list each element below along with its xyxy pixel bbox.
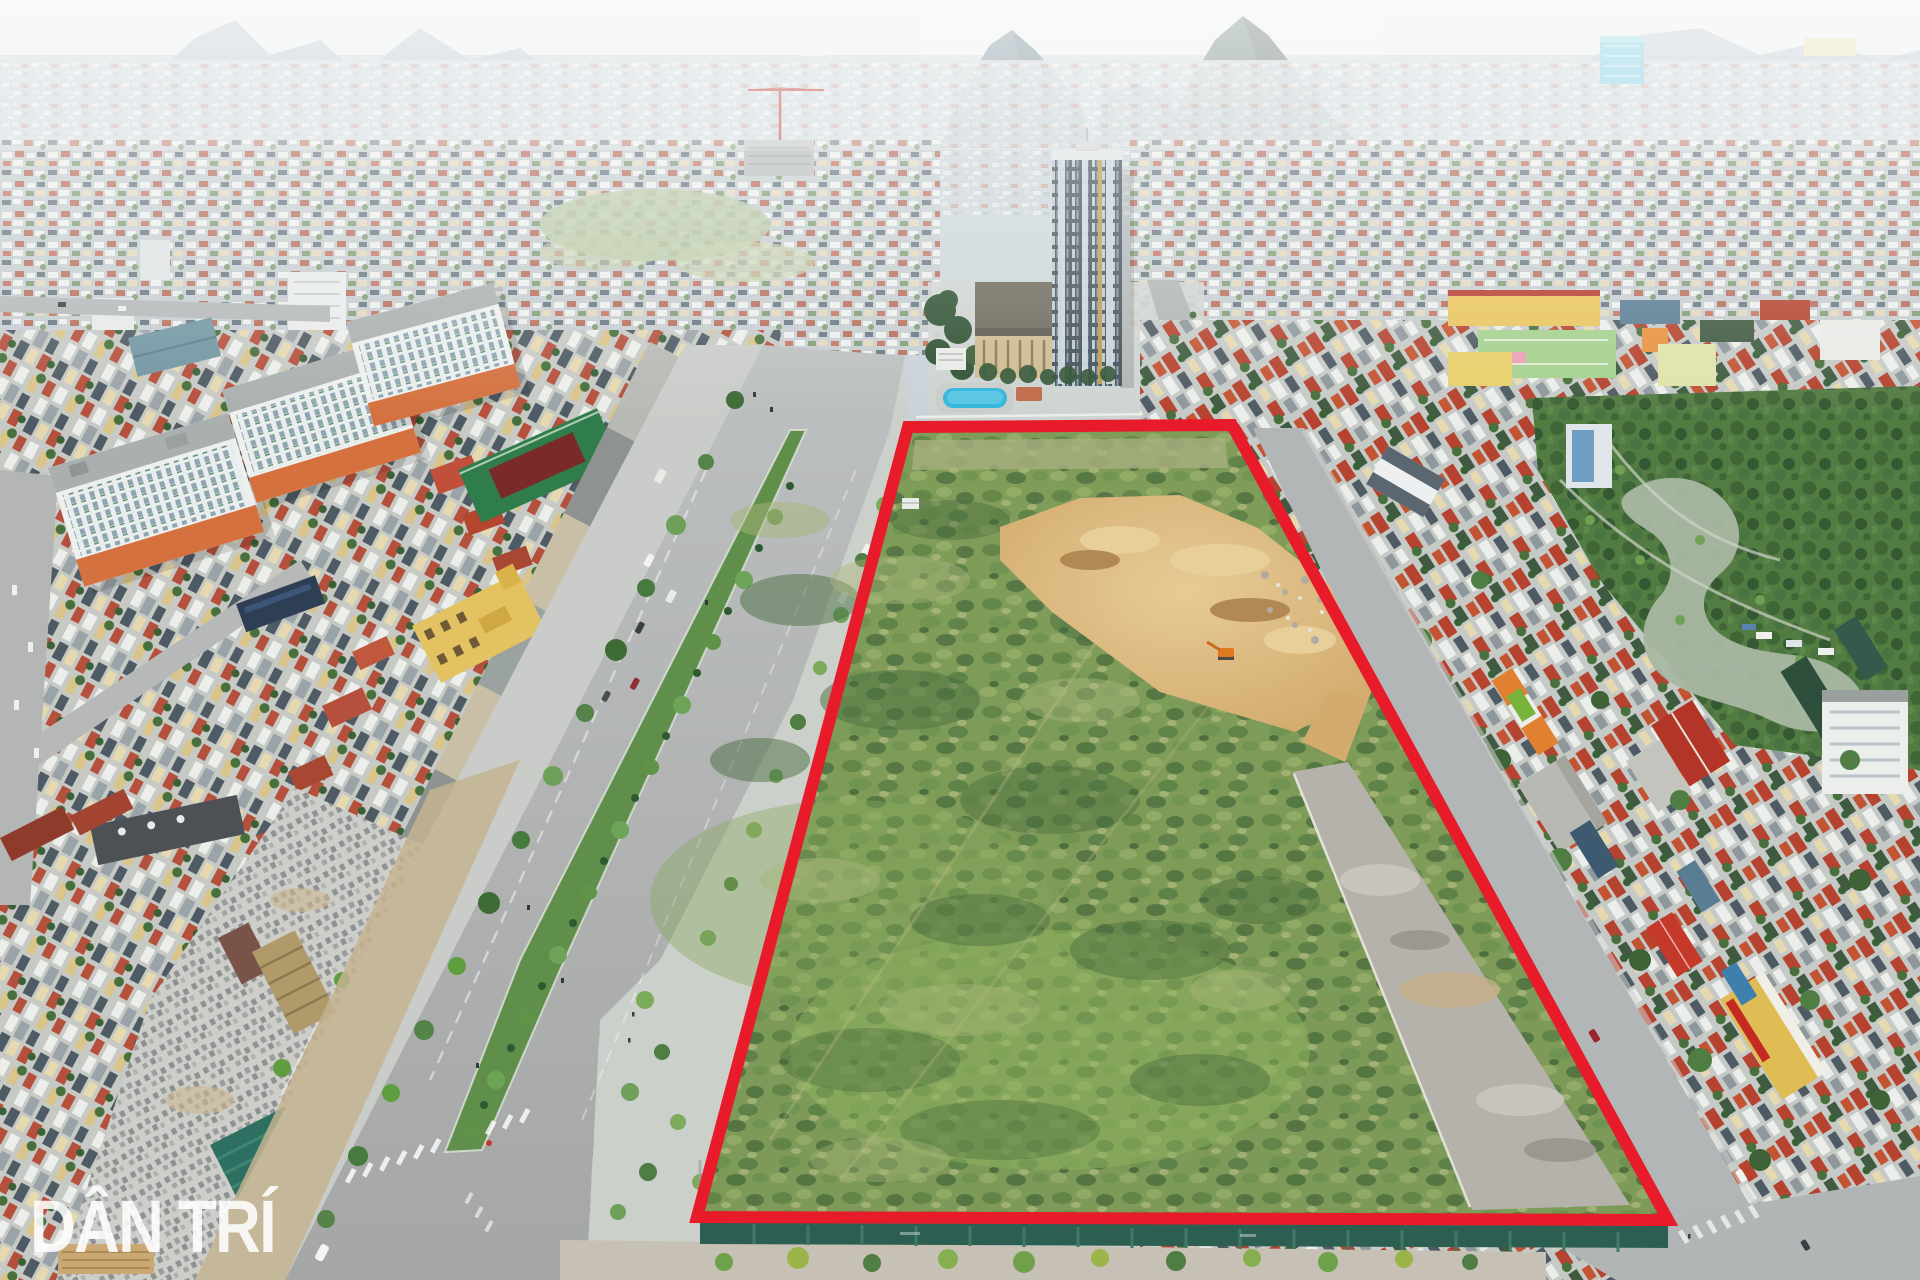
horizon-haze [0, 0, 1920, 150]
white-apartment-slab [1822, 690, 1908, 794]
aerial-photo: DÂN TRÍ [0, 0, 1920, 1280]
construction-hoarding [700, 1222, 1668, 1248]
disturbed-strip [912, 438, 1228, 470]
median-sign [486, 1140, 492, 1146]
photo-canvas: DÂN TRÍ [0, 0, 1920, 1280]
dantri-watermark: DÂN TRÍ [30, 1185, 279, 1268]
site-cabin [902, 498, 919, 509]
pedestrian [1688, 1234, 1691, 1239]
